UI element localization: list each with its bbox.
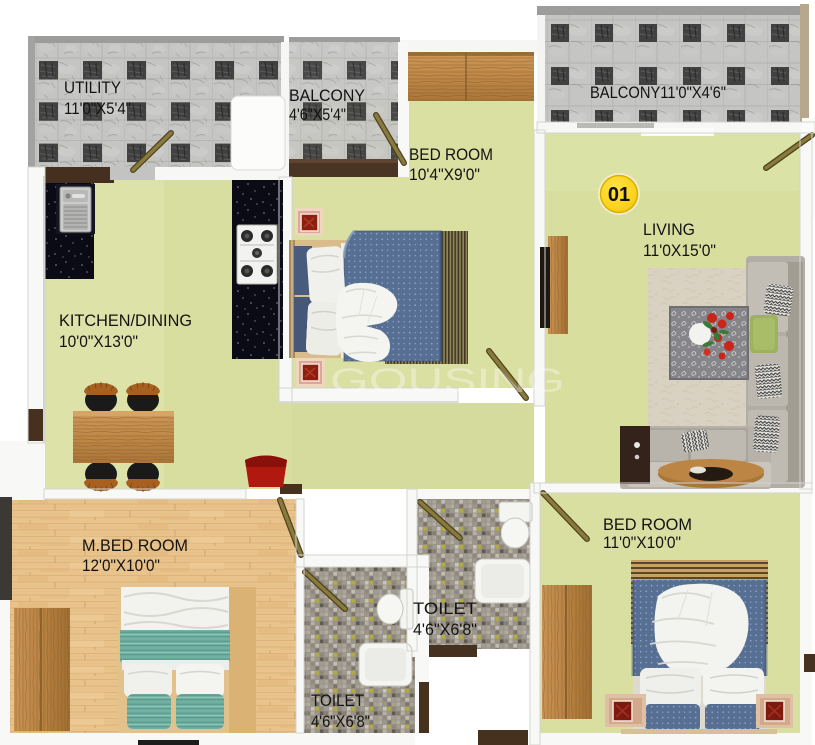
svg-text:10'0"X13'0": 10'0"X13'0" [59,332,138,351]
svg-text:11'0"X10'0": 11'0"X10'0" [603,533,681,552]
svg-text:KITCHEN/DINING: KITCHEN/DINING [59,311,192,330]
svg-text:01: 01 [608,184,630,206]
svg-text:TOILET: TOILET [413,599,477,618]
svg-text:TOILET: TOILET [311,691,364,710]
svg-text:4'6"X6'8": 4'6"X6'8" [311,712,370,731]
svg-text:GOUSING: GOUSING [330,362,565,400]
svg-text:LIVING: LIVING [643,220,695,239]
svg-text:11'0"X5'4": 11'0"X5'4" [64,99,131,118]
svg-text:10'4"X9'0": 10'4"X9'0" [409,165,480,184]
svg-text:BED ROOM: BED ROOM [409,145,493,164]
svg-text:4'6"X5'4": 4'6"X5'4" [289,105,346,124]
svg-text:12'0"X10'0": 12'0"X10'0" [82,556,160,575]
svg-text:BED ROOM: BED ROOM [603,515,692,534]
svg-text:M.BED ROOM: M.BED ROOM [82,536,188,555]
svg-text:11'0X15'0": 11'0X15'0" [643,241,716,260]
svg-text:BALCONY: BALCONY [289,86,365,105]
svg-text:BALCONY11'0"X4'6": BALCONY11'0"X4'6" [590,83,726,102]
svg-text:4'6"X6'8": 4'6"X6'8" [413,620,477,639]
svg-text:UTILITY: UTILITY [64,78,121,97]
